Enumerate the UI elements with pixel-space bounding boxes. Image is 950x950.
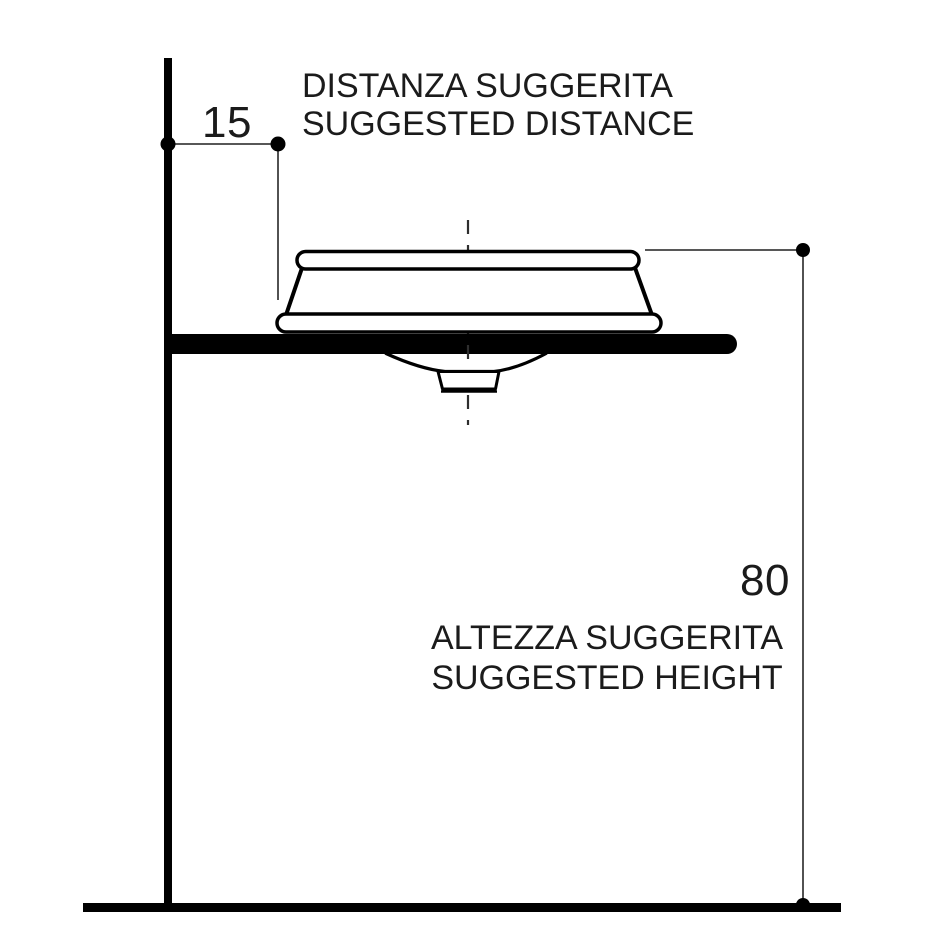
suggested-distance-note-italian: DISTANZA SUGGERITA <box>302 67 694 105</box>
basin-base-rim <box>277 314 661 332</box>
suggested-height-note: ALTEZZA SUGGERITA SUGGESTED HEIGHT <box>407 618 807 698</box>
suggested-height-note-english: SUGGESTED HEIGHT <box>407 658 807 698</box>
suggested-distance-note: DISTANZA SUGGERITA SUGGESTED DISTANCE <box>302 67 694 143</box>
height-value: 80 <box>715 557 815 604</box>
basin-body <box>286 265 652 315</box>
dimension-dot <box>796 898 810 912</box>
suggested-distance-note-english: SUGGESTED DISTANCE <box>302 105 694 143</box>
distance-value: 15 <box>177 99 277 146</box>
basin-top-rim <box>297 252 639 270</box>
suggested-height-note-italian: ALTEZZA SUGGERITA <box>407 618 807 658</box>
installation-diagram: 15 80 DISTANZA SUGGERITA SUGGESTED DISTA… <box>0 0 950 950</box>
basin-underside-curve <box>386 354 546 372</box>
dimension-dot <box>161 137 176 152</box>
dimension-dot <box>796 243 810 257</box>
drain-fitting <box>438 372 499 390</box>
